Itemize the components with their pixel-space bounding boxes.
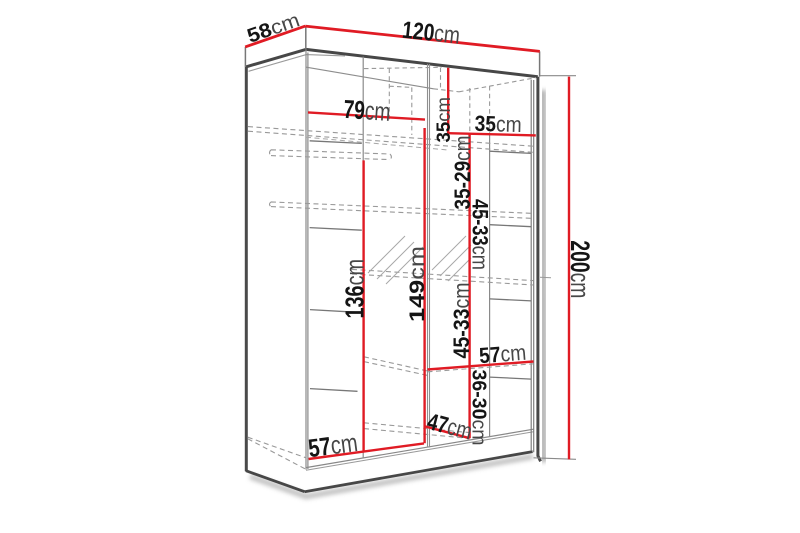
svg-text:120cm: 120cm bbox=[401, 17, 462, 50]
svg-text:57cm: 57cm bbox=[478, 340, 527, 369]
svg-text:58cm: 58cm bbox=[244, 9, 302, 47]
svg-text:149cm: 149cm bbox=[405, 246, 429, 322]
svg-text:200cm: 200cm bbox=[565, 240, 595, 298]
svg-text:45-33cm: 45-33cm bbox=[468, 199, 493, 270]
svg-text:79cm: 79cm bbox=[343, 94, 392, 127]
svg-text:35cm: 35cm bbox=[474, 111, 522, 137]
svg-text:45-33cm: 45-33cm bbox=[449, 283, 474, 359]
svg-text:47cm: 47cm bbox=[425, 408, 475, 444]
svg-text:136cm: 136cm bbox=[339, 259, 369, 319]
svg-text:57cm: 57cm bbox=[307, 429, 360, 463]
